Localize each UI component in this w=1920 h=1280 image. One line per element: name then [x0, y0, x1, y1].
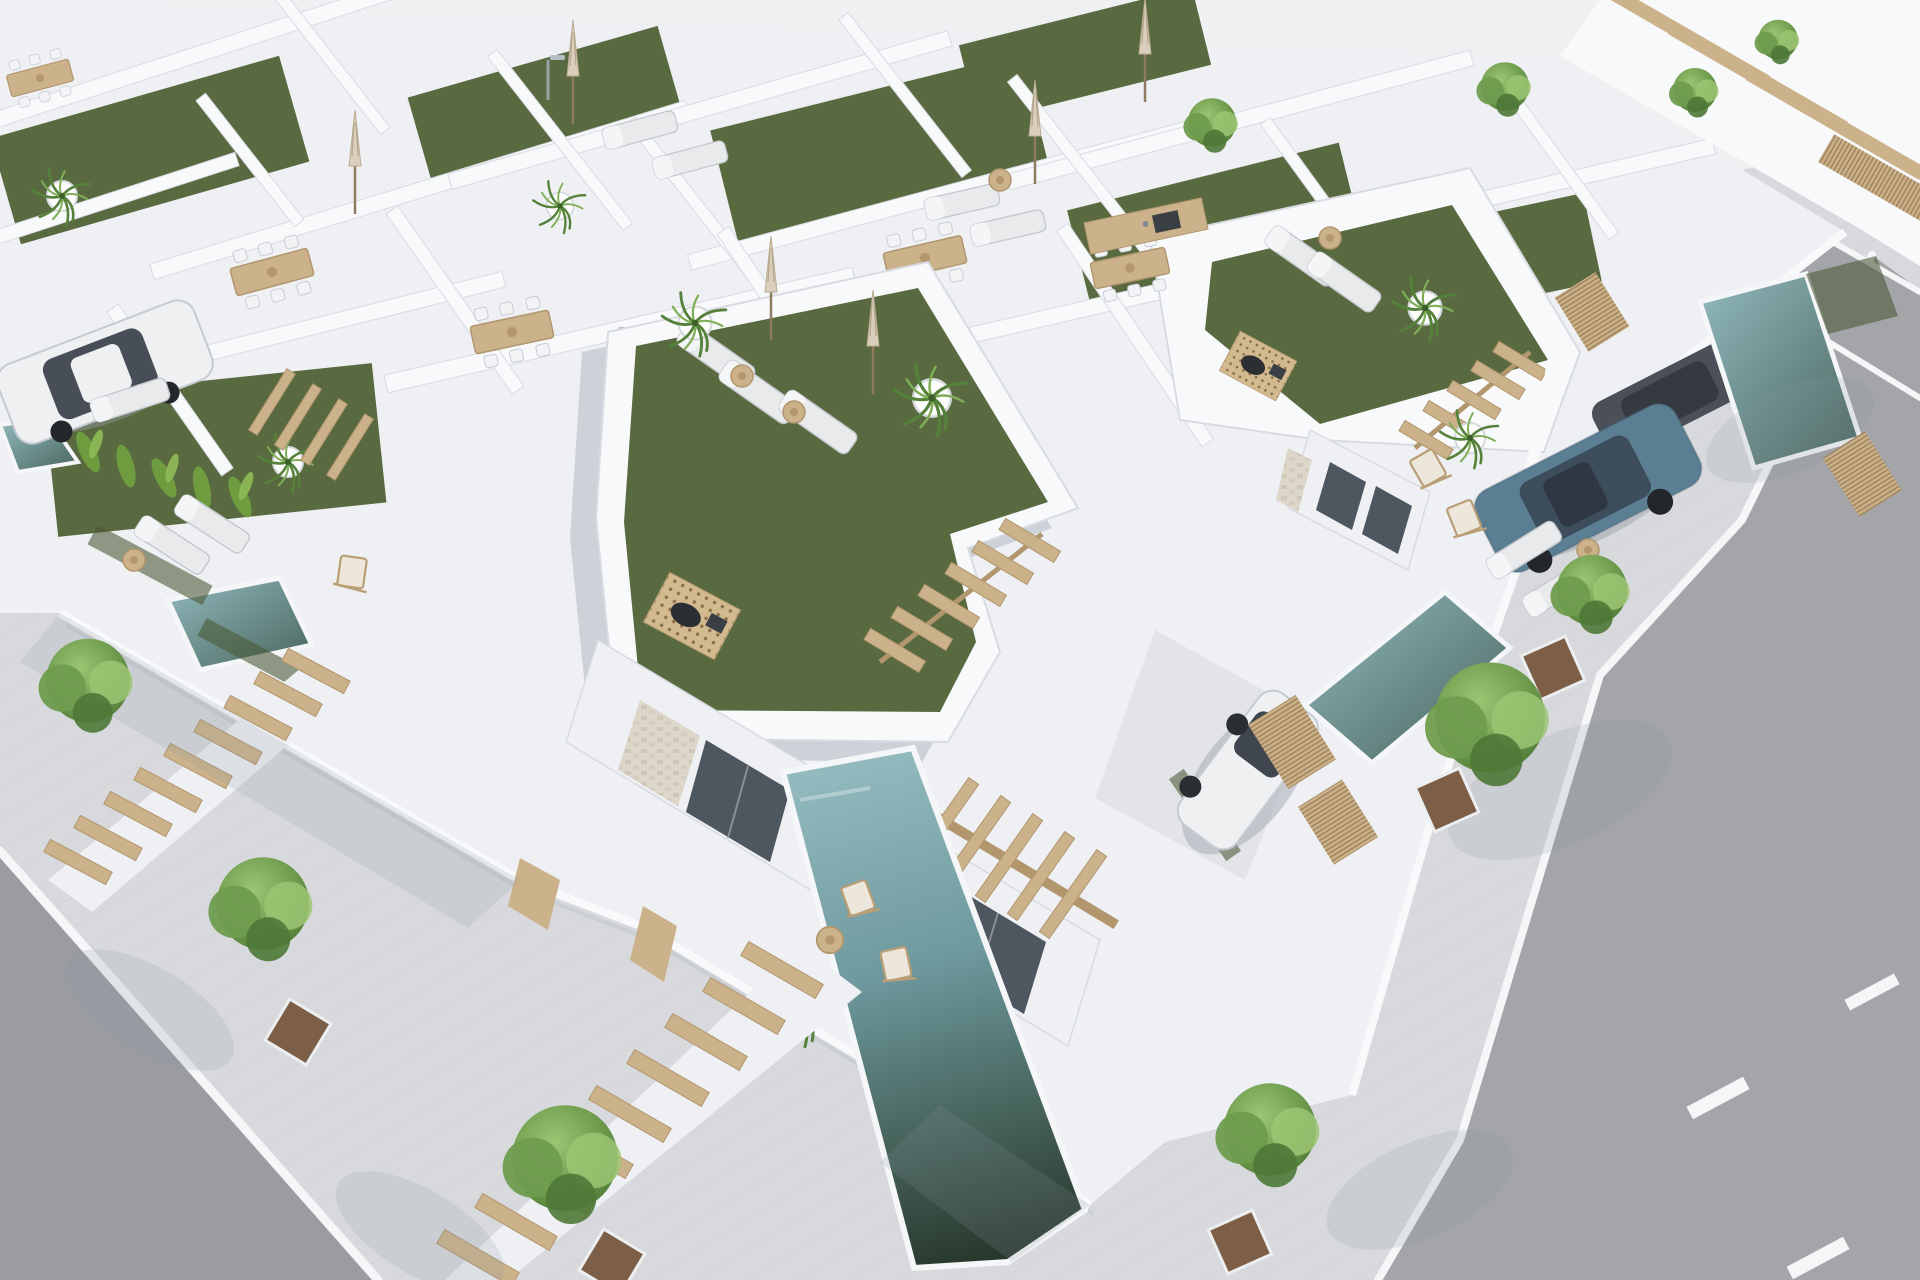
rattan-table	[817, 927, 843, 953]
side-table	[783, 401, 805, 423]
aerial-render-image	[0, 0, 1920, 1280]
side-table	[989, 169, 1011, 191]
rattan-table	[123, 549, 145, 571]
scene-canvas	[0, 0, 1920, 1280]
side-table	[1319, 227, 1341, 249]
side-table	[731, 365, 753, 387]
